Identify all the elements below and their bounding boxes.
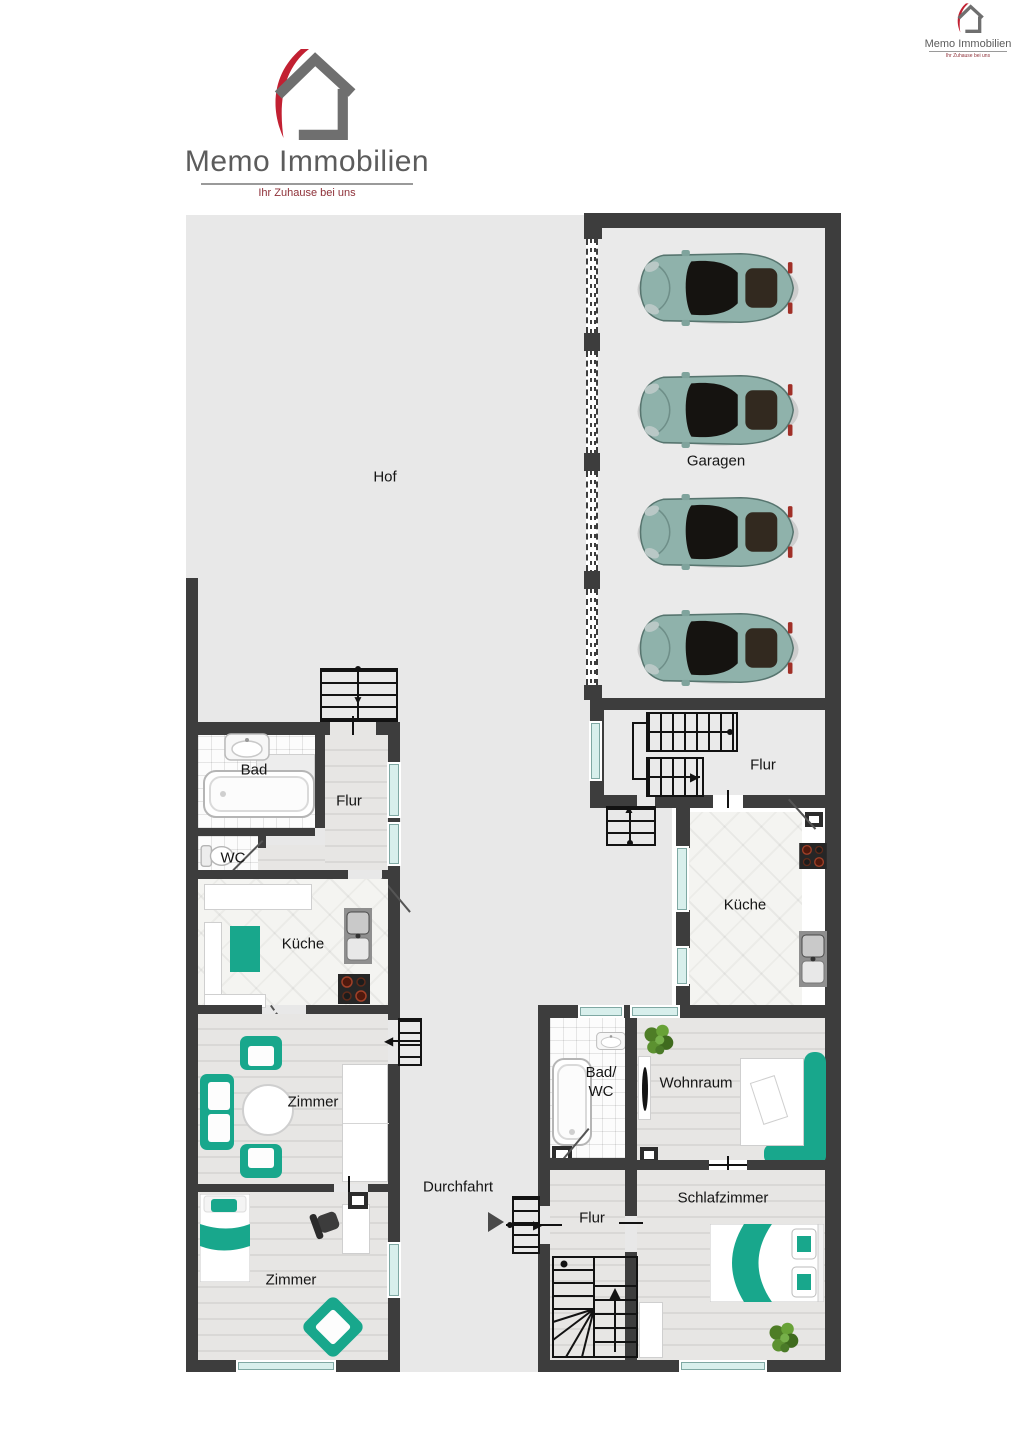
wall — [186, 578, 198, 728]
staircase — [552, 1256, 638, 1358]
brand-name: Memo Immobilien — [182, 145, 432, 179]
stove — [338, 974, 370, 1004]
window — [389, 1244, 399, 1296]
garage-door — [586, 471, 598, 571]
wall — [584, 571, 600, 589]
floorplan-page: Memo Immobilien Ihr Zuhause bei uns Memo… — [0, 0, 1018, 1440]
window — [591, 723, 600, 779]
room-label-bad-wc: Bad/WC — [586, 1063, 617, 1101]
room-label-bad-wc-line1: Bad/ — [586, 1064, 617, 1081]
wall — [747, 1160, 825, 1170]
room-label-bad: Bad — [241, 762, 268, 779]
armchair — [240, 1144, 282, 1178]
window — [238, 1362, 334, 1370]
wardrobe-divider — [343, 1123, 389, 1124]
single-bed — [200, 1194, 250, 1282]
wall — [625, 1018, 637, 1158]
divider — [201, 183, 413, 185]
wall — [584, 333, 600, 351]
double-bed — [710, 1224, 824, 1302]
room-label-flur-eg: Flur — [579, 1210, 605, 1227]
window — [632, 1007, 678, 1016]
wall — [198, 1184, 334, 1192]
stair-guide-line — [632, 722, 634, 780]
armchair — [240, 1036, 282, 1070]
sofa — [200, 1074, 234, 1150]
stair-guide-line — [632, 722, 648, 724]
room-label-kueche-links: Küche — [282, 936, 325, 953]
garage-door — [586, 351, 598, 453]
room-label-flur-og: Flur — [750, 757, 776, 774]
room-label-hof: Hof — [373, 469, 396, 486]
wall — [306, 1005, 388, 1014]
wall — [198, 828, 315, 836]
wall — [368, 1184, 388, 1192]
garage-door — [586, 239, 598, 333]
car-icon — [633, 610, 803, 686]
wall — [584, 453, 600, 471]
door-threshold — [619, 1222, 643, 1224]
kitchen-counter — [204, 884, 312, 910]
car-icon — [633, 250, 803, 326]
kitchen-sink — [799, 931, 827, 987]
tv-screen — [642, 1067, 648, 1111]
stair-start-dot — [507, 1222, 513, 1228]
room-label-kueche-og: Küche — [724, 897, 767, 914]
kitchen-table — [230, 926, 260, 972]
arrow-up-icon: ▲ — [623, 803, 635, 815]
wall — [538, 1158, 637, 1170]
stair-start-dot — [627, 840, 633, 846]
house-logo-icon — [255, 48, 359, 140]
plant — [762, 1320, 804, 1356]
room-label-garagen: Garagen — [687, 453, 745, 470]
room-label-flur-links: Flur — [336, 793, 362, 810]
wall — [825, 213, 841, 1372]
stair-start-dot — [355, 666, 361, 672]
corner-sofa — [740, 1052, 826, 1164]
window — [681, 1362, 765, 1370]
room-label-zimmer-unten: Zimmer — [266, 1272, 317, 1289]
stair-guide-line — [632, 778, 648, 780]
brand-name: Memo Immobilien — [918, 38, 1018, 50]
arrow-down-icon: ▼ — [352, 694, 364, 706]
wall — [584, 213, 602, 239]
stair-start-dot — [727, 729, 733, 735]
washbasin — [596, 1028, 626, 1054]
hallway-floor — [258, 845, 325, 870]
wall — [676, 808, 690, 848]
wall — [584, 685, 602, 700]
wall — [625, 1170, 637, 1216]
logo-main: Memo Immobilien Ihr Zuhause bei uns — [182, 48, 432, 199]
wall — [637, 1160, 709, 1170]
logo-small: Memo Immobilien Ihr Zuhause bei uns — [918, 3, 1018, 59]
divider — [929, 51, 1007, 52]
window — [389, 764, 399, 816]
stove — [799, 843, 827, 869]
window — [677, 848, 687, 910]
chimney-shaft — [348, 1192, 368, 1209]
brand-tagline: Ihr Zuhause bei uns — [182, 187, 432, 199]
kitchen-sink — [344, 908, 372, 964]
car-icon — [633, 494, 803, 570]
staircase — [398, 1018, 422, 1066]
plant — [640, 1022, 676, 1058]
room-label-wohnraum: Wohnraum — [659, 1075, 732, 1092]
room-label-zimmer-oben: Zimmer — [288, 1094, 339, 1111]
room-label-bad-wc-line2: WC — [588, 1083, 613, 1100]
room-label-durchfahrt: Durchfahrt — [423, 1179, 493, 1196]
round-table — [242, 1084, 294, 1136]
room-label-wc: WC — [221, 850, 246, 867]
wall — [676, 910, 690, 948]
window — [389, 824, 399, 864]
car-icon — [633, 372, 803, 448]
wall — [198, 1005, 262, 1014]
arrow-right-icon: ▶ — [690, 771, 699, 783]
window — [580, 1007, 622, 1016]
garage-door — [586, 589, 598, 685]
wall — [186, 722, 198, 1372]
wall — [538, 1005, 550, 1372]
washbasin — [224, 733, 270, 761]
wall — [198, 870, 348, 879]
entrance-arrow-icon — [488, 1212, 504, 1232]
room-label-schlafzimmer: Schlafzimmer — [678, 1190, 769, 1207]
wardrobe — [342, 1064, 388, 1182]
house-logo-icon — [951, 3, 985, 33]
wall — [590, 698, 841, 710]
tv-board — [638, 1056, 651, 1120]
arrow-right-icon: ▶ — [533, 1219, 542, 1231]
stair-guide-line — [646, 731, 734, 733]
wall — [315, 735, 325, 828]
arrow-left-icon: ◀ — [384, 1035, 393, 1047]
wall — [586, 213, 841, 228]
brand-tagline: Ihr Zuhause bei uns — [918, 53, 1018, 59]
desk — [342, 1204, 370, 1254]
wardrobe — [639, 1302, 663, 1358]
window — [677, 948, 687, 984]
